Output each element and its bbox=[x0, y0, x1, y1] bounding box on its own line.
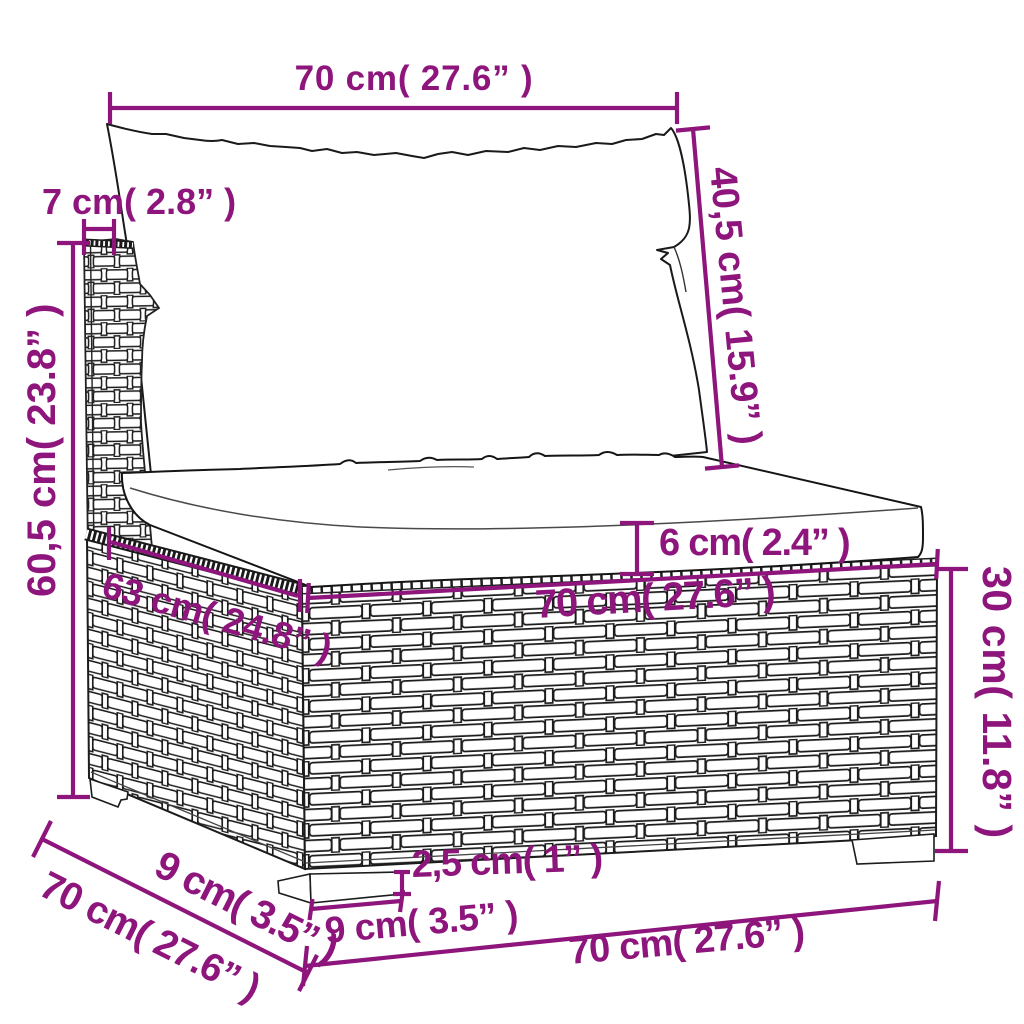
svg-text:30 cm( 11.8” ): 30 cm( 11.8” ) bbox=[974, 566, 1020, 839]
svg-text:60,5 cm( 23.8” ): 60,5 cm( 23.8” ) bbox=[20, 304, 64, 598]
svg-text:2,5 cm( 1” ): 2,5 cm( 1” ) bbox=[411, 837, 603, 886]
svg-text:6 cm( 2.4” ): 6 cm( 2.4” ) bbox=[659, 522, 849, 564]
svg-text:7 cm( 2.8” ): 7 cm( 2.8” ) bbox=[42, 181, 236, 222]
svg-text:70 cm( 27.6” ): 70 cm( 27.6” ) bbox=[295, 59, 534, 98]
